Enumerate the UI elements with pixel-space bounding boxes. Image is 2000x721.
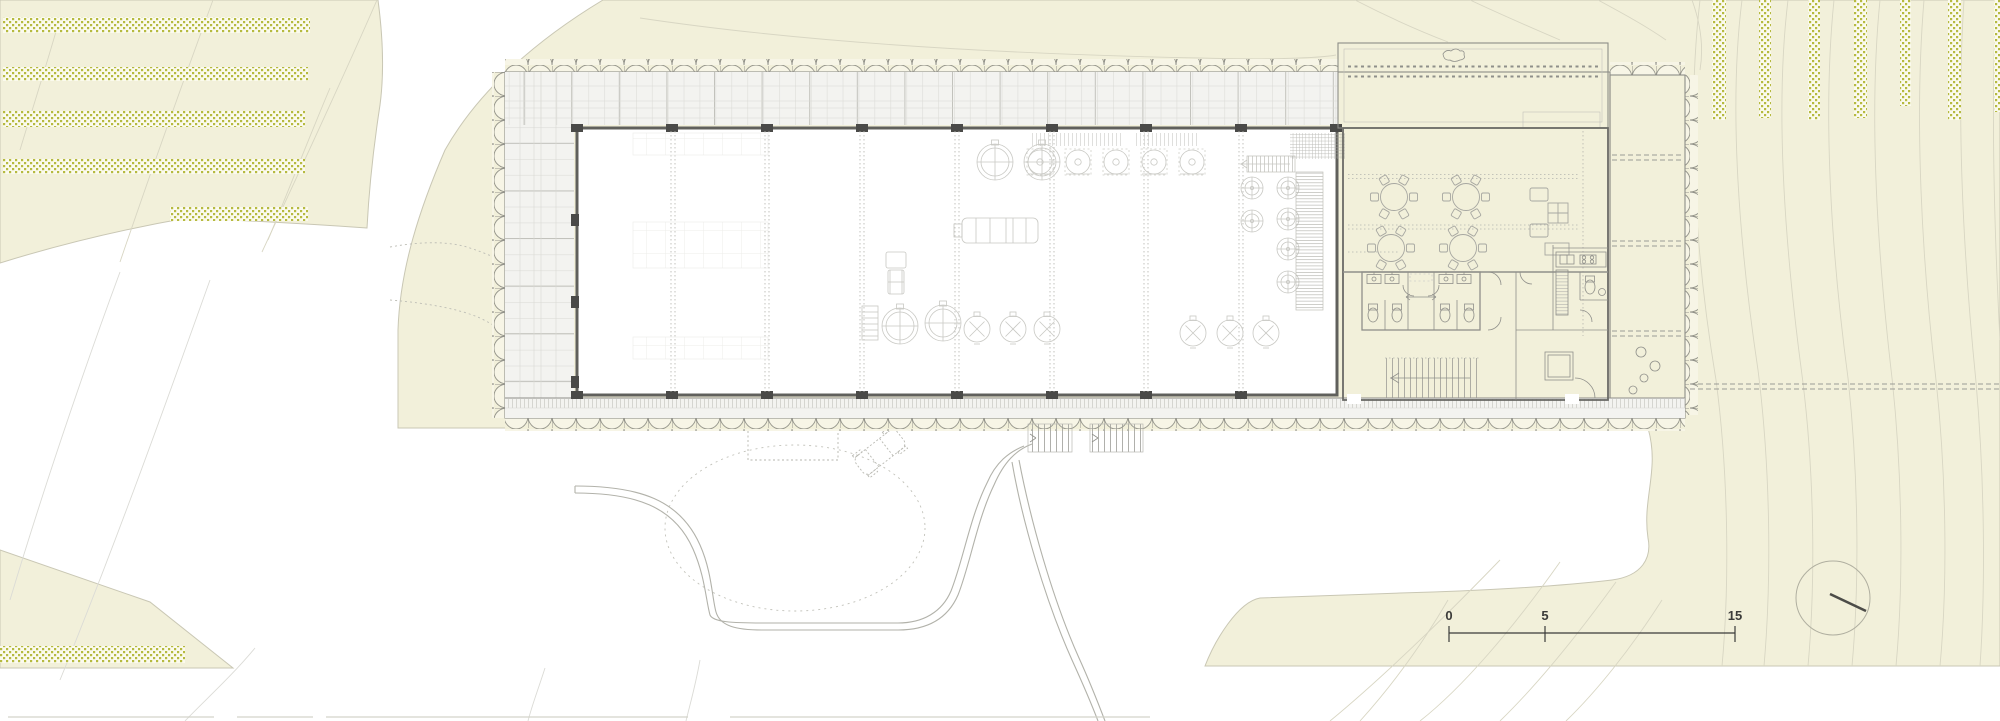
site-plan-canvas: 0 5 15	[0, 0, 2000, 721]
scale-label-5: 5	[1541, 608, 1548, 623]
ramp	[1296, 172, 1323, 310]
grid-platform	[1290, 133, 1345, 159]
main-hall	[571, 124, 1345, 399]
terrain-field-topleft	[0, 0, 383, 263]
main-stair	[1385, 358, 1480, 398]
exit-road	[1012, 462, 1098, 721]
door-opening	[1347, 394, 1361, 404]
car-sketch	[851, 425, 909, 479]
scale-label-15: 15	[1728, 608, 1742, 623]
site-plan-drawing: 0 5 15	[0, 0, 2000, 721]
hall-stair	[1240, 156, 1295, 172]
scale-label-0: 0	[1445, 608, 1452, 623]
door-opening	[1565, 394, 1579, 404]
